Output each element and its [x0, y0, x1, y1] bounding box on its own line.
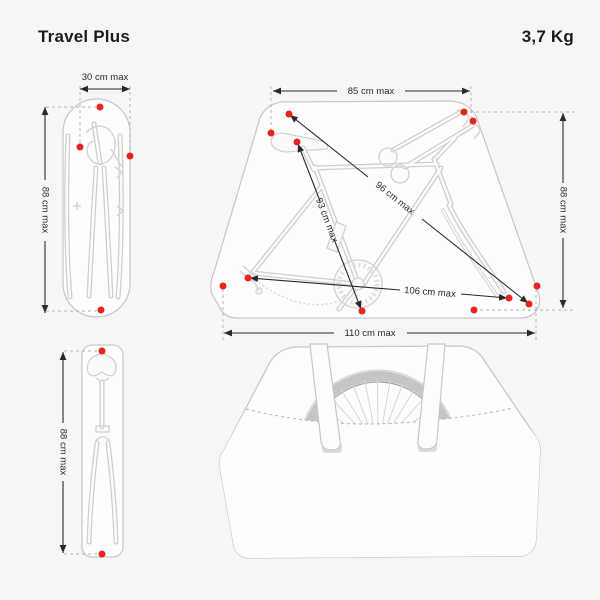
dim-label-bag-top-width: 85 cm max	[348, 86, 395, 97]
product-dimension-diagram: Travel Plus 3,7 Kg 30 cm m	[0, 0, 600, 600]
diagram-canvas: 30 cm max 88 cm max	[0, 0, 600, 600]
strap-point-dot	[526, 301, 533, 308]
strap-point-dot	[359, 308, 366, 315]
folded-frame-view: 30 cm max 88 cm max	[39, 72, 133, 317]
dim-bag-height: 88 cm max	[557, 113, 568, 308]
strap-point-dot	[127, 153, 134, 160]
dim-label-pocket-height: 88 cm max	[57, 429, 68, 476]
strap-point-dot	[461, 109, 468, 116]
closed-bag-front-panel	[220, 408, 541, 558]
closed-bag-view	[220, 344, 541, 558]
strap-point-dot	[99, 551, 106, 558]
dim-bag-bottom-width: 110 cm max	[224, 328, 535, 339]
strap-point-dot	[99, 348, 106, 355]
strap-point-dot	[268, 130, 275, 137]
strap-point-dot	[97, 104, 104, 111]
strap-point-dot	[471, 307, 478, 314]
strap-point-dot	[286, 111, 293, 118]
strap-point-dot	[245, 275, 252, 282]
dim-bag-top-width: 85 cm max	[273, 86, 470, 97]
open-bag-view: 85 cm max 88 cm max 110 cm max 96 cm max	[211, 86, 575, 341]
dim-label-folded-width: 30 cm max	[82, 72, 129, 83]
strap-point-dot	[220, 283, 227, 290]
strap-point-dot	[506, 295, 513, 302]
strap-point-dot	[294, 139, 301, 146]
saddle-fork-view: 88 cm max	[57, 345, 123, 558]
strap-point-dot	[470, 118, 477, 125]
dim-label-bag-bottom-width: 110 cm max	[344, 328, 395, 339]
strap-point-dot	[534, 283, 541, 290]
strap-point-dot	[98, 307, 105, 314]
strap-point-dot	[77, 144, 84, 151]
dim-label-folded-height: 88 cm max	[39, 187, 50, 234]
dim-label-bag-height: 88 cm max	[557, 187, 568, 234]
